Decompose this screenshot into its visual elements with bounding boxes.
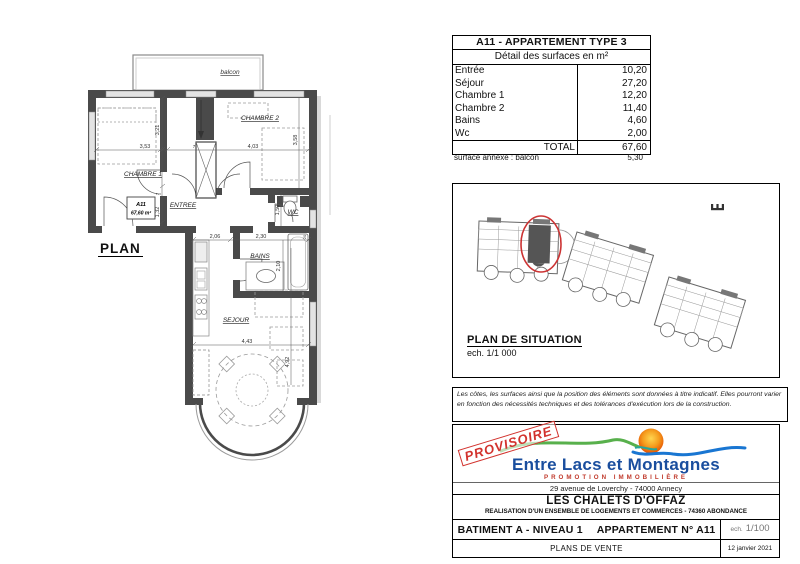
unit-apartment: APPARTEMENT N° A11 — [597, 524, 716, 536]
situation-plan-scale: ech. 1/1 000 — [467, 348, 517, 358]
surface-table-subtitle: Détail des surfaces en m² — [453, 50, 650, 65]
unit-tag-id: A11 — [135, 202, 146, 208]
dim-partition-b: 7 — [155, 192, 160, 195]
project-detail: REALISATION D'UN ENSEMBLE DE LOGEMENTS E… — [453, 508, 779, 516]
table-row: Wc 2,00 — [453, 128, 650, 141]
project-section: LES CHALETS D'OFFAZ REALISATION D'UN ENS… — [453, 494, 779, 519]
unit-row: BATIMENT A - NIVEAU 1 APPARTEMENT N° A11… — [453, 519, 779, 539]
surface-table-body: Entrée 10,20 Séjour 27,20 Chambre 1 12,2… — [453, 65, 650, 140]
plan-de-vente-page: balcon — [0, 0, 800, 564]
table-row: Entrée 10,20 — [453, 65, 650, 78]
room-label-entree: ENTREE — [170, 202, 197, 209]
wardrobe — [196, 142, 216, 198]
scale-value: 1/100 — [746, 523, 770, 534]
scale-cell: ech. 1/100 — [720, 520, 779, 539]
row-label: Wc — [453, 128, 577, 141]
row-value: 27,20 — [577, 78, 650, 91]
table-total-row: TOTAL 67,60 — [453, 140, 650, 154]
compass-mark — [711, 204, 724, 210]
dim-chambre1-width: 3,53 — [140, 144, 151, 150]
annex-surface-line: surface annexe : balcon 5,30 — [452, 153, 649, 162]
table-row: Séjour 27,20 — [453, 78, 650, 91]
row-value: 4,60 — [577, 115, 650, 128]
building-3 — [651, 273, 746, 358]
brand-address: 29 avenue de Loverchy - 74000 Annecy — [453, 482, 779, 494]
dim-chambre1-depth: 3,21 — [155, 125, 161, 136]
title-block: PROVISOIRE Entre Lacs et Montagnes PROMO… — [452, 424, 780, 558]
brand-tagline: PROMOTION IMMOBILIÈRE — [453, 474, 779, 481]
document-date: 12 janvier 2021 — [720, 540, 779, 557]
surface-table-title: A11 - APPARTEMENT TYPE 3 — [453, 36, 650, 50]
situation-plan-title: PLAN DE SITUATION — [467, 334, 582, 347]
dim-bains-depth: 2,10 — [276, 261, 282, 272]
annex-label: surface annexe : balcon — [452, 153, 627, 162]
room-label-wc: WC — [288, 209, 299, 216]
brand-name: Entre Lacs et Montagnes — [453, 455, 779, 475]
project-title: LES CHALETS D'OFFAZ — [453, 495, 779, 508]
document-type: PLANS DE VENTE — [453, 540, 720, 557]
room-label-chambre1: CHAMBRE 1 — [124, 171, 162, 178]
row-label: Séjour — [453, 78, 577, 91]
dim-kitchen-width: 2,06 — [210, 234, 221, 240]
floor-plan-drawing: balcon — [0, 0, 450, 564]
unit-identification: BATIMENT A - NIVEAU 1 APPARTEMENT N° A11 — [453, 520, 720, 539]
table-row: Bains 4,60 — [453, 115, 650, 128]
bay-window — [196, 403, 308, 460]
dim-wall-thickness: 20 — [302, 234, 307, 239]
dim-chambre2-width: 4,03 — [248, 144, 259, 150]
document-row: PLANS DE VENTE 12 janvier 2021 — [453, 539, 779, 557]
room-label-chambre2: CHAMBRE 2 — [241, 115, 279, 122]
row-value: 11,40 — [577, 103, 650, 116]
dim-sejour-width: 4,43 — [242, 339, 253, 345]
table-column-divider — [577, 65, 578, 140]
annex-value: 5,30 — [627, 153, 649, 162]
disclaimer-box: Les côtes, les surfaces ainsi que la pos… — [452, 387, 788, 422]
row-label: Bains — [453, 115, 577, 128]
dim-chambre2-depth: 3,58 — [293, 135, 299, 146]
dim-bains-width: 2,30 — [256, 234, 267, 240]
table-row: Chambre 1 12,20 — [453, 90, 650, 103]
dim-entree-depth: 1,32 — [155, 207, 161, 218]
unit-tag: A11 67,60 m² — [127, 197, 155, 219]
balcony-outline — [133, 55, 263, 90]
exterior-hatch — [317, 96, 321, 403]
dim-wc-depth: 1,50 — [275, 205, 281, 216]
row-value: 2,00 — [577, 128, 650, 141]
surface-table: A11 - APPARTEMENT TYPE 3 Détail des surf… — [452, 35, 651, 155]
row-value: 12,20 — [577, 90, 650, 103]
row-label: Chambre 1 — [453, 90, 577, 103]
unit-tag-area: 67,60 m² — [131, 211, 151, 217]
logo-section: PROVISOIRE Entre Lacs et Montagnes PROMO… — [453, 425, 779, 494]
table-row: Chambre 2 11,40 — [453, 103, 650, 116]
kitchen-block — [193, 240, 209, 395]
plan-title: PLAN — [98, 241, 143, 257]
dim-partition-a: 7 — [193, 144, 196, 149]
room-label-bains: BAINS — [250, 253, 270, 260]
row-label: Entrée — [453, 65, 577, 78]
room-label-sejour: SEJOUR — [223, 317, 250, 324]
dim-sejour-depth: 4,92 — [285, 357, 291, 368]
row-value: 10,20 — [577, 65, 650, 78]
unit-building: BATIMENT A - NIVEAU 1 — [458, 524, 583, 536]
row-label: Chambre 2 — [453, 103, 577, 116]
balcony-label: balcon — [220, 69, 240, 76]
scale-prefix: ech. — [730, 526, 742, 533]
situation-plan-box: PLAN DE SITUATION ech. 1/1 000 — [452, 183, 780, 378]
